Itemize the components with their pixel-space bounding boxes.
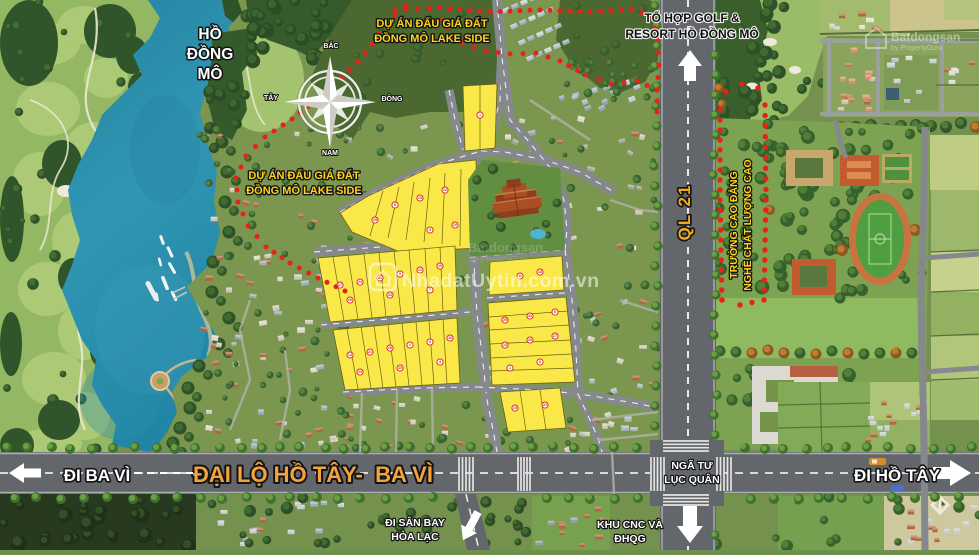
svg-text:TỔ HỢP GOLF &: TỔ HỢP GOLF & <box>644 10 740 25</box>
svg-text:28: 28 <box>388 346 392 350</box>
svg-text:ĐÔNG: ĐÔNG <box>382 94 404 103</box>
svg-text:14: 14 <box>348 353 352 357</box>
svg-text:NAM: NAM <box>322 150 338 157</box>
svg-text:9: 9 <box>429 340 431 344</box>
svg-text:HÒA LẠC: HÒA LẠC <box>391 530 439 543</box>
svg-text:NhadatUytin.com.vn: NhadatUytin.com.vn <box>402 270 600 292</box>
svg-text:26: 26 <box>348 298 352 302</box>
svg-text:15: 15 <box>513 406 517 410</box>
svg-text:ĐẠI LỘ HỒ TÂY- BA VÌ: ĐẠI LỘ HỒ TÂY- BA VÌ <box>193 462 433 487</box>
svg-text:17: 17 <box>338 283 342 287</box>
svg-text:ĐI BA VÌ: ĐI BA VÌ <box>64 466 130 485</box>
svg-text:ĐỒNG MÔ LAKE SIDE: ĐỒNG MÔ LAKE SIDE <box>246 184 362 197</box>
svg-text:QL 21: QL 21 <box>675 184 694 241</box>
svg-text:4: 4 <box>439 360 441 364</box>
svg-text:22: 22 <box>443 188 447 192</box>
svg-text:33: 33 <box>388 293 392 297</box>
svg-text:RESORT HỒ ĐỒNG MÔ: RESORT HỒ ĐỒNG MÔ <box>625 26 758 41</box>
svg-text:HỒ: HỒ <box>198 25 221 43</box>
svg-text:2: 2 <box>409 343 411 347</box>
svg-text:by PropertyGuru: by PropertyGuru <box>891 45 942 52</box>
svg-text:KHU CNC VÀ: KHU CNC VÀ <box>597 518 663 531</box>
svg-text:13: 13 <box>503 343 507 347</box>
svg-text:20: 20 <box>528 338 532 342</box>
svg-text:Batdongsan: Batdongsan <box>891 30 960 44</box>
svg-text:1: 1 <box>479 113 481 117</box>
svg-text:19: 19 <box>438 264 442 268</box>
svg-text:ĐI HỒ TÂY: ĐI HỒ TÂY <box>854 466 941 485</box>
svg-text:10: 10 <box>453 223 457 227</box>
svg-text:by PropertyGuru: by PropertyGuru <box>470 255 529 264</box>
svg-text:DỰ ÁN ĐẤU GIÁ ĐẤT: DỰ ÁN ĐẤU GIÁ ĐẤT <box>376 17 487 30</box>
svg-text:8: 8 <box>394 203 396 207</box>
svg-text:29: 29 <box>373 218 377 222</box>
svg-text:27: 27 <box>553 334 557 338</box>
svg-text:23: 23 <box>358 370 362 374</box>
svg-text:ĐI SÂN BAY: ĐI SÂN BAY <box>385 516 445 529</box>
svg-text:MÔ: MÔ <box>198 65 223 83</box>
svg-text:TRƯỜNG CAO ĐẲNG: TRƯỜNG CAO ĐẲNG <box>727 171 740 279</box>
svg-text:25: 25 <box>503 318 507 322</box>
svg-text:15: 15 <box>418 196 422 200</box>
svg-text:Batdongsan: Batdongsan <box>468 240 543 255</box>
svg-text:DỰ ÁN ĐẤU GIÁ ĐẤT: DỰ ÁN ĐẤU GIÁ ĐẤT <box>248 169 359 182</box>
svg-text:21: 21 <box>368 350 372 354</box>
svg-text:BẮC: BẮC <box>323 41 338 50</box>
svg-text:30: 30 <box>398 366 402 370</box>
svg-text:ĐHQG: ĐHQG <box>614 533 646 545</box>
svg-text:8: 8 <box>539 360 541 364</box>
svg-text:3: 3 <box>429 228 431 232</box>
svg-text:NGHỀ CHẤT LƯỢNG CAO: NGHỀ CHẤT LƯỢNG CAO <box>741 159 754 290</box>
svg-text:32: 32 <box>528 314 532 318</box>
svg-text:NGÃ TƯ: NGÃ TƯ <box>671 459 713 472</box>
svg-text:LỤC QUÂN: LỤC QUÂN <box>664 473 719 486</box>
svg-text:ĐỒNG MÔ LAKE SIDE: ĐỒNG MÔ LAKE SIDE <box>374 32 490 45</box>
svg-text:6: 6 <box>554 310 556 314</box>
svg-text:TÂY: TÂY <box>264 93 278 102</box>
svg-text:ĐỒNG: ĐỒNG <box>187 45 234 63</box>
svg-text:24: 24 <box>358 280 362 284</box>
svg-text:22: 22 <box>543 403 547 407</box>
svg-text:1: 1 <box>509 366 511 370</box>
svg-text:16: 16 <box>448 336 452 340</box>
svg-text:5: 5 <box>399 272 401 276</box>
